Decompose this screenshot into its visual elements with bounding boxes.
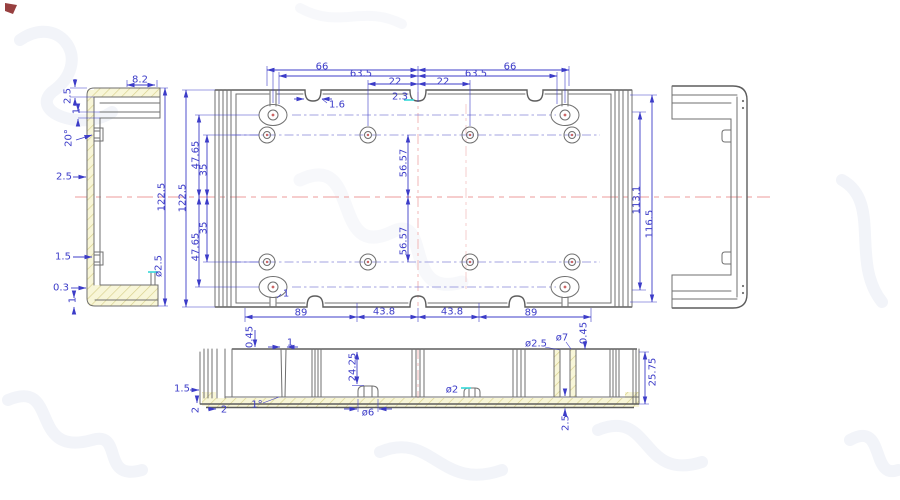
dim-25-75: 25.75	[648, 358, 659, 387]
dim-1-6: 1.6	[329, 100, 345, 111]
dim-113-1: 113.1	[632, 186, 643, 215]
dim-slot-1: 1	[283, 289, 289, 300]
cad-drawing: 8.2 2.5 1 20° 2.5 1.5 0.3 1 122.5 ø2.5	[0, 0, 900, 500]
dim-2-5-floor: 2.5	[561, 415, 572, 431]
dim-dia-6: ø6	[362, 408, 374, 419]
dim-1-bottom: 1	[68, 297, 79, 303]
dim-1-top: 1	[72, 108, 83, 114]
dim-24-25: 24.25	[348, 353, 359, 382]
dim-43-8-left: 43.8	[373, 307, 395, 318]
dim-dia-2-5-side: ø2.5	[154, 255, 165, 277]
dim-122-5-side: 122.5	[157, 183, 168, 212]
dim-35-top: 35	[199, 164, 210, 177]
dim-35-bottom: 35	[199, 222, 210, 235]
dim-1-rib: 1	[287, 338, 293, 349]
eared-hole	[259, 105, 287, 126]
dim-22-left: 22	[389, 77, 402, 88]
dim-0-45-right: 0.45	[579, 322, 590, 344]
dim-63-5-left: 63.5	[350, 69, 372, 80]
hatch-bottom-block	[89, 285, 158, 306]
dim-2-left: 2	[191, 407, 202, 413]
dim-122-5-front: 122.5	[178, 184, 189, 213]
hatch-boss-wall	[570, 350, 576, 397]
dim-8-2: 8.2	[132, 75, 148, 86]
dim-22-right: 22	[437, 77, 450, 88]
dim-56-57-top: 56.57	[399, 149, 410, 178]
hatch-boss-wall	[554, 350, 560, 397]
dim-0-45-left: 0.45	[245, 326, 256, 348]
dim-dia-2: ø2	[446, 385, 458, 396]
dim-1-deg: 1°	[251, 400, 262, 411]
dim-dia-7: ø7	[556, 333, 568, 344]
view-bottom-section: 0.45 1 24.25 ø6 ø2 ø2.5 ø7 0.45 25.75 2.…	[174, 322, 658, 431]
dim-1-5-wall: 1.5	[174, 384, 190, 395]
hatch-floor	[206, 398, 639, 407]
dim-66-right: 66	[504, 62, 517, 73]
dim-2-3: 2.3	[392, 92, 408, 103]
dim-116-5: 116.5	[645, 210, 656, 239]
hatch-top-flange	[94, 88, 160, 97]
dim-63-5-right: 63.5	[465, 69, 487, 80]
dim-47-65-bottom: 47.65	[191, 233, 202, 262]
hatch-wall	[87, 90, 94, 304]
dim-43-8-right: 43.8	[441, 307, 463, 318]
cad-drawing-canvas: 8.2 2.5 1 20° 2.5 1.5 0.3 1 122.5 ø2.5	[0, 0, 900, 500]
corner-stamp	[5, 3, 17, 14]
dim-2-5-top: 2.5	[63, 88, 74, 104]
dim-89-right: 89	[525, 308, 538, 319]
dim-1-5: 1.5	[55, 252, 71, 263]
dim-66-left: 66	[316, 62, 329, 73]
dim-89-left: 89	[295, 308, 308, 319]
dim-56-57-bottom: 56.57	[399, 227, 410, 256]
dim-0-3: 0.3	[53, 283, 69, 294]
dim-2-5-mid: 2.5	[56, 172, 72, 183]
view-front: 66 66 63.5 63.5 22 22 1.6 2.3 122.5 47.6…	[178, 62, 658, 323]
dim-20deg: 20°	[64, 129, 75, 147]
dim-2-right: 2	[221, 405, 227, 416]
dim-dia-2-5: ø2.5	[525, 339, 547, 350]
